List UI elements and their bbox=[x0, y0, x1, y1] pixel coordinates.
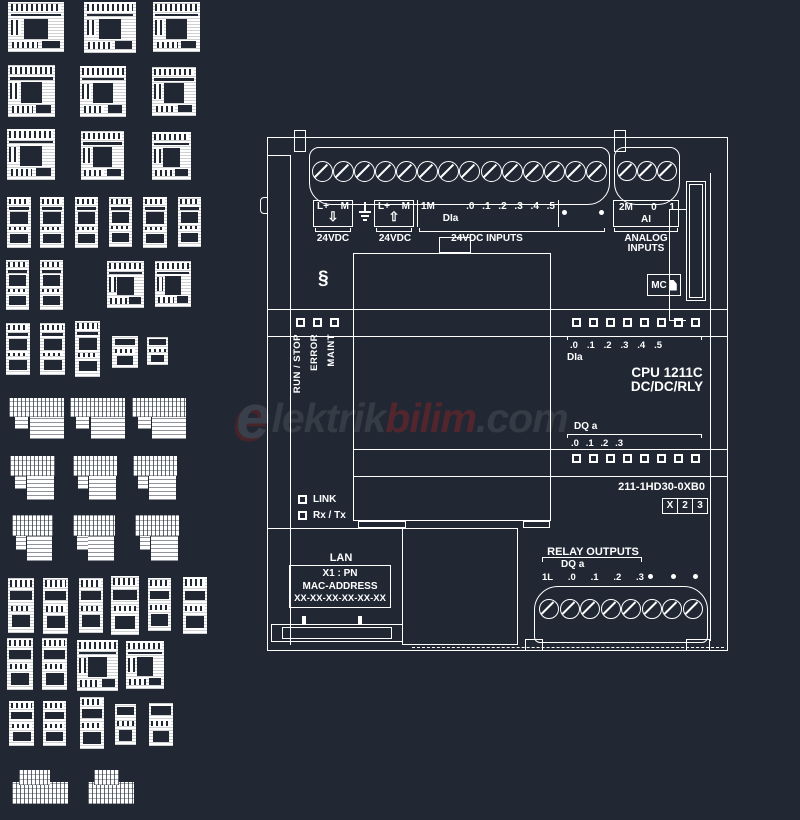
terminal-screw bbox=[560, 599, 580, 619]
dq-group-label: DQ a bbox=[574, 421, 597, 432]
body-split-line bbox=[551, 309, 728, 310]
terminal-screw bbox=[586, 161, 607, 182]
door-line bbox=[353, 449, 551, 450]
led-indicator bbox=[296, 318, 305, 327]
order-number: 211-1HD30-0XB0 bbox=[582, 481, 705, 493]
component-thumbnail bbox=[7, 129, 55, 180]
terminal-screw bbox=[375, 161, 396, 182]
component-thumbnail bbox=[12, 770, 68, 806]
component-thumbnail bbox=[147, 337, 168, 365]
center-door bbox=[353, 253, 551, 521]
lan-mac-caption: MAC-ADDRESS bbox=[290, 581, 390, 592]
component-thumbnail bbox=[9, 397, 66, 440]
terminal-screw bbox=[438, 161, 459, 182]
channel-label: .2 bbox=[604, 340, 612, 351]
component-thumbnail bbox=[178, 197, 201, 247]
rx-tx-led bbox=[298, 511, 307, 520]
led-indicator bbox=[572, 318, 581, 327]
door-line bbox=[353, 336, 551, 337]
status-label-error: ERROR bbox=[309, 334, 320, 371]
led-indicator bbox=[640, 454, 649, 463]
channel-label: .3 bbox=[620, 340, 628, 351]
led-indicator bbox=[589, 454, 598, 463]
unused-terminal-dot bbox=[671, 574, 676, 579]
component-thumbnail bbox=[42, 638, 67, 690]
terminal-screw bbox=[481, 161, 502, 182]
version-boxes: X23 bbox=[663, 495, 708, 514]
terminal-screw bbox=[617, 161, 637, 181]
component-thumbnail bbox=[40, 260, 63, 310]
component-thumbnail bbox=[80, 697, 104, 749]
component-thumbnail bbox=[88, 770, 134, 806]
component-thumbnail bbox=[79, 578, 103, 633]
component-thumbnail bbox=[77, 640, 118, 691]
component-thumbnail bbox=[43, 578, 68, 634]
unused-terminal-dot bbox=[599, 210, 604, 215]
rj45-pin bbox=[358, 616, 362, 624]
di-group-label: DIa bbox=[423, 213, 478, 224]
unused-terminal-dot bbox=[693, 574, 698, 579]
component-thumbnail bbox=[6, 260, 29, 310]
ai-common-label: 2M bbox=[619, 202, 633, 213]
terminal-screw bbox=[637, 161, 657, 181]
relay-terminal-screws bbox=[539, 599, 703, 619]
terminal-screw bbox=[657, 161, 677, 181]
terminal-screw bbox=[544, 161, 565, 182]
relay-unused-dots bbox=[648, 574, 698, 579]
terminal-screw bbox=[333, 161, 354, 182]
channel-label: .3 bbox=[615, 438, 623, 449]
section-symbol: § bbox=[318, 269, 329, 290]
component-thumbnail bbox=[111, 576, 139, 635]
component-thumbnail bbox=[43, 701, 66, 746]
dq-channel-labels: .0.1.2.3 bbox=[571, 438, 623, 449]
component-thumbnail bbox=[7, 197, 31, 248]
version-cell: 2 bbox=[677, 498, 693, 514]
relay-channel-labels: 1L.0.1.2.3 bbox=[542, 572, 644, 583]
channel-label: .2 bbox=[613, 572, 621, 583]
component-thumbnail bbox=[73, 455, 118, 501]
di-caption: 24VDC INPUTS bbox=[417, 233, 557, 244]
body-split-line bbox=[268, 528, 402, 529]
led-indicator bbox=[691, 318, 700, 327]
component-thumbnail bbox=[112, 336, 138, 368]
link-led bbox=[298, 495, 307, 504]
body-split-line bbox=[551, 449, 728, 450]
component-thumbnail bbox=[75, 321, 100, 377]
power-in-label-box: L+ M ⇩ bbox=[313, 200, 353, 227]
lan-port-id: X1 : PN bbox=[290, 568, 390, 579]
sensor-out-label-box: L+ M ⇧ bbox=[374, 200, 414, 227]
door-bottom-tab bbox=[523, 521, 550, 528]
channel-label: .1 bbox=[587, 340, 595, 351]
card-slot-bracket bbox=[669, 209, 686, 321]
component-thumbnail bbox=[81, 131, 124, 180]
terminal-screw bbox=[523, 161, 544, 182]
unused-terminal-dot bbox=[648, 574, 653, 579]
terminal-screw bbox=[539, 599, 559, 619]
terminal-screw bbox=[312, 161, 333, 182]
caption-bracket bbox=[376, 228, 412, 232]
terminal-screw bbox=[565, 161, 586, 182]
terminal-screw bbox=[642, 599, 662, 619]
body-split-line bbox=[268, 309, 353, 310]
terminal-screw bbox=[417, 161, 438, 182]
component-thumbnail bbox=[75, 197, 98, 248]
version-cell: 3 bbox=[692, 498, 708, 514]
channel-label: .1 bbox=[586, 438, 594, 449]
component-thumbnail bbox=[70, 397, 127, 440]
unused-terminal-dot bbox=[562, 210, 567, 215]
component-thumbnail bbox=[80, 66, 126, 117]
led-indicator bbox=[674, 318, 683, 327]
power-in-caption: 24VDC bbox=[308, 233, 358, 244]
channel-label: .2 bbox=[600, 438, 608, 449]
terminal-screw bbox=[459, 161, 480, 182]
led-indicator bbox=[674, 454, 683, 463]
led-indicator bbox=[572, 454, 581, 463]
led-indicator bbox=[330, 318, 339, 327]
terminal-screw bbox=[683, 599, 703, 619]
memory-card-icon bbox=[669, 280, 677, 291]
channel-label: .0 bbox=[568, 572, 576, 583]
channel-label: .4 bbox=[637, 340, 645, 351]
component-thumbnail bbox=[8, 2, 64, 52]
terminal-screws-main bbox=[312, 161, 607, 182]
component-thumbnail bbox=[132, 397, 188, 440]
di-block-group-label: DIa bbox=[567, 352, 583, 363]
led-indicator bbox=[589, 318, 598, 327]
component-thumbnail bbox=[10, 455, 56, 501]
di-led-row bbox=[572, 318, 700, 327]
component-thumbnail bbox=[8, 65, 55, 117]
status-label-run-stop: RUN / STOP bbox=[292, 334, 303, 393]
component-thumbnail bbox=[84, 2, 136, 53]
version-cell: X bbox=[662, 498, 678, 514]
status-led-row bbox=[296, 318, 339, 327]
component-thumbnail bbox=[183, 577, 207, 634]
component-thumbnail bbox=[7, 638, 33, 690]
led-indicator bbox=[691, 454, 700, 463]
terminal-screw bbox=[580, 599, 600, 619]
mc-badge: MC bbox=[647, 274, 681, 296]
component-thumbnail bbox=[107, 261, 144, 308]
arrow-up-icon: ⇧ bbox=[375, 210, 413, 224]
led-indicator bbox=[606, 454, 615, 463]
door-line bbox=[353, 309, 551, 310]
lan-mac-value: XX-XX-XX-XX-XX-XX bbox=[290, 594, 390, 604]
ground-icon bbox=[358, 202, 372, 224]
component-thumbnail bbox=[40, 323, 65, 375]
led-indicator bbox=[657, 454, 666, 463]
caption-bracket bbox=[315, 228, 351, 232]
component-thumbnail bbox=[148, 578, 171, 631]
channel-label: 1L bbox=[542, 572, 553, 583]
din-clip-left bbox=[260, 197, 268, 214]
status-label-maint: MAINT bbox=[326, 334, 337, 367]
component-thumbnail bbox=[115, 704, 136, 745]
component-thumbnail bbox=[152, 67, 196, 116]
component-thumbnail bbox=[6, 323, 30, 375]
mc-label: MC bbox=[651, 280, 667, 291]
di-terminal-label-box: 1M .0 .1 .2 .3 .4 .5 DIa bbox=[417, 200, 559, 227]
channel-label: .0 bbox=[570, 340, 578, 351]
cpu-type: DC/DC/RLY bbox=[607, 380, 727, 394]
channel-label: .1 bbox=[591, 572, 599, 583]
component-thumbnail bbox=[12, 514, 54, 562]
terminal-screws-analog bbox=[617, 161, 677, 181]
top-clip-left bbox=[294, 130, 306, 152]
body-split-line bbox=[551, 476, 728, 477]
di-common-label: 1M bbox=[421, 201, 435, 212]
cpu-model: CPU 1211C bbox=[607, 366, 727, 380]
thumbnail-panel[interactable] bbox=[0, 0, 230, 820]
component-thumbnail bbox=[9, 701, 34, 746]
component-thumbnail bbox=[133, 455, 178, 501]
rj45-port-inner bbox=[282, 627, 392, 639]
door-bottom-tab bbox=[358, 521, 406, 528]
lan-box: X1 : PN MAC-ADDRESS XX-XX-XX-XX-XX-XX bbox=[289, 565, 391, 608]
din-rail-dashed-line bbox=[412, 647, 724, 648]
caption-bracket bbox=[419, 228, 605, 232]
rj45-pin bbox=[302, 616, 306, 624]
channel-label: .5 bbox=[654, 340, 662, 351]
terminal-screw bbox=[662, 599, 682, 619]
plc-front-view: L+ M ⇩ L+ M ⇧ 1M .0 .1 .2 .3 .4 .5 DIa bbox=[262, 133, 736, 659]
channel-label: .3 bbox=[636, 572, 644, 583]
led-indicator bbox=[623, 318, 632, 327]
memory-card-slot-inner bbox=[689, 184, 703, 298]
component-thumbnail bbox=[149, 703, 173, 746]
lan-title: LAN bbox=[324, 552, 358, 564]
terminal-screw bbox=[502, 161, 523, 182]
terminal-screw bbox=[621, 599, 641, 619]
di-channel-labels: .0.1.2.3.4.5 bbox=[570, 340, 662, 351]
channel-label: .0 bbox=[571, 438, 579, 449]
cad-canvas[interactable]: elektrikbilim.com L+ M ⇩ bbox=[0, 0, 800, 820]
component-thumbnail bbox=[135, 514, 180, 562]
door-latch-tab bbox=[439, 237, 471, 253]
component-thumbnail bbox=[152, 132, 191, 180]
unused-terminal-dots bbox=[562, 210, 604, 215]
dq-led-row bbox=[572, 454, 700, 463]
terminal-screw bbox=[396, 161, 417, 182]
component-thumbnail bbox=[40, 197, 64, 248]
terminal-screw bbox=[601, 599, 621, 619]
door-line bbox=[353, 476, 551, 477]
rx-tx-label: Rx / Tx bbox=[313, 510, 346, 521]
led-indicator bbox=[606, 318, 615, 327]
relay-bracket-line bbox=[542, 557, 642, 558]
component-thumbnail bbox=[8, 578, 34, 633]
housing-inner-right-line bbox=[710, 173, 711, 641]
component-thumbnail bbox=[153, 2, 200, 52]
arrow-down-icon: ⇩ bbox=[314, 210, 352, 224]
body-split-line bbox=[268, 336, 353, 337]
center-bottom-module bbox=[402, 528, 518, 645]
component-thumbnail bbox=[126, 641, 164, 689]
component-thumbnail bbox=[109, 197, 132, 247]
component-thumbnail bbox=[73, 514, 116, 562]
component-thumbnail bbox=[143, 197, 167, 248]
sensor-out-caption: 24VDC bbox=[370, 233, 420, 244]
led-indicator bbox=[657, 318, 666, 327]
terminal-screw bbox=[354, 161, 375, 182]
housing-step-line bbox=[267, 155, 290, 156]
led-indicator bbox=[313, 318, 322, 327]
channel-label: .0 .1 .2 .3 .4 .5 bbox=[466, 201, 555, 212]
led-indicator bbox=[623, 454, 632, 463]
component-thumbnail bbox=[155, 261, 191, 307]
led-indicator bbox=[640, 318, 649, 327]
link-label: LINK bbox=[313, 494, 336, 505]
